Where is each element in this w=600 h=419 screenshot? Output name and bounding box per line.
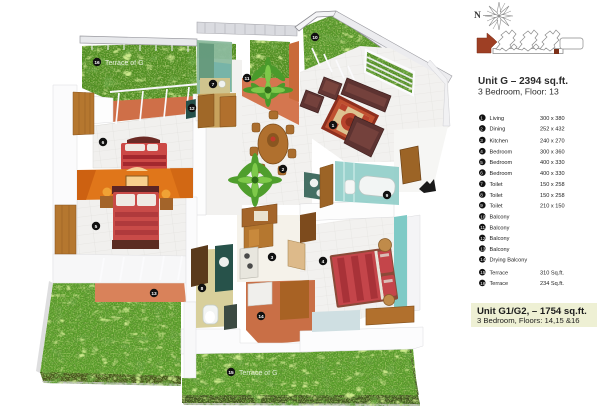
svg-text:Toilet: Toilet: [490, 204, 504, 210]
svg-text:14: 14: [480, 257, 486, 262]
svg-text:Unit G – 2394 sq.ft.: Unit G – 2394 sq.ft.: [478, 76, 568, 87]
svg-text:300 x 380: 300 x 380: [540, 116, 565, 122]
svg-text:5: 5: [480, 160, 483, 165]
svg-text:8: 8: [201, 286, 204, 292]
svg-text:Terrace: Terrace: [490, 271, 509, 277]
svg-text:11: 11: [480, 225, 485, 230]
svg-text:3 Bedroom, Floor: 13: 3 Bedroom, Floor: 13: [478, 87, 559, 97]
svg-text:11: 11: [244, 76, 249, 82]
svg-text:3: 3: [271, 255, 274, 261]
svg-text:252 x 432: 252 x 432: [540, 127, 565, 133]
svg-text:3: 3: [480, 138, 483, 143]
svg-text:400 x 330: 400 x 330: [540, 160, 565, 166]
svg-text:7: 7: [480, 182, 483, 187]
svg-text:4: 4: [480, 149, 483, 154]
svg-text:310 Sq.ft.: 310 Sq.ft.: [540, 271, 564, 277]
svg-text:Bedroom: Bedroom: [490, 171, 513, 177]
svg-text:5: 5: [95, 224, 98, 230]
svg-text:Dining: Dining: [490, 127, 506, 133]
svg-text:2: 2: [480, 126, 483, 131]
svg-text:1: 1: [480, 116, 483, 121]
svg-text:N: N: [474, 11, 481, 21]
svg-text:150 x 258: 150 x 258: [540, 182, 565, 188]
svg-text:14: 14: [258, 314, 264, 320]
svg-text:Toilet: Toilet: [490, 193, 504, 199]
svg-text:210 x 150: 210 x 150: [540, 204, 565, 210]
svg-text:400 x 330: 400 x 330: [540, 171, 565, 177]
svg-text:4: 4: [322, 259, 325, 265]
svg-text:12: 12: [189, 106, 195, 112]
svg-text:15: 15: [480, 270, 486, 275]
svg-text:240 x 270: 240 x 270: [540, 138, 565, 144]
svg-text:Toilet: Toilet: [490, 182, 504, 188]
svg-text:150 x 258: 150 x 258: [540, 193, 565, 199]
svg-text:9: 9: [386, 193, 389, 199]
svg-text:Balcony: Balcony: [490, 236, 510, 242]
svg-text:9: 9: [480, 203, 483, 208]
svg-text:Terrace: Terrace: [490, 281, 509, 287]
svg-text:234 Sq.ft.: 234 Sq.ft.: [540, 281, 564, 287]
svg-text:8: 8: [480, 192, 483, 197]
svg-text:300 x 360: 300 x 360: [540, 150, 565, 156]
svg-text:12: 12: [480, 236, 486, 241]
svg-text:2: 2: [282, 167, 285, 173]
svg-text:Drying Balcony: Drying Balcony: [490, 258, 528, 264]
svg-text:Balcony: Balcony: [490, 225, 510, 231]
svg-text:13: 13: [480, 247, 486, 252]
svg-text:Living: Living: [490, 116, 505, 122]
svg-text:15: 15: [228, 370, 234, 376]
svg-text:10: 10: [480, 214, 486, 219]
svg-text:3 Bedroom, Floors: 14,15 &16: 3 Bedroom, Floors: 14,15 &16: [477, 316, 580, 325]
svg-text:Bedroom: Bedroom: [490, 160, 513, 166]
svg-text:13: 13: [151, 291, 157, 297]
svg-text:Terrace of G: Terrace of G: [105, 60, 144, 67]
svg-text:Terrace of G: Terrace of G: [239, 370, 278, 377]
svg-text:1: 1: [332, 123, 335, 129]
svg-text:Bedroom: Bedroom: [490, 150, 513, 156]
svg-text:16: 16: [480, 281, 486, 286]
svg-text:6: 6: [102, 140, 105, 146]
svg-text:Balcony: Balcony: [490, 215, 510, 221]
svg-text:16: 16: [94, 60, 100, 66]
svg-text:7: 7: [212, 82, 215, 88]
svg-text:6: 6: [480, 171, 483, 176]
svg-text:Kitchen: Kitchen: [490, 138, 509, 144]
svg-text:Balcony: Balcony: [490, 247, 510, 253]
svg-text:10: 10: [312, 35, 318, 41]
